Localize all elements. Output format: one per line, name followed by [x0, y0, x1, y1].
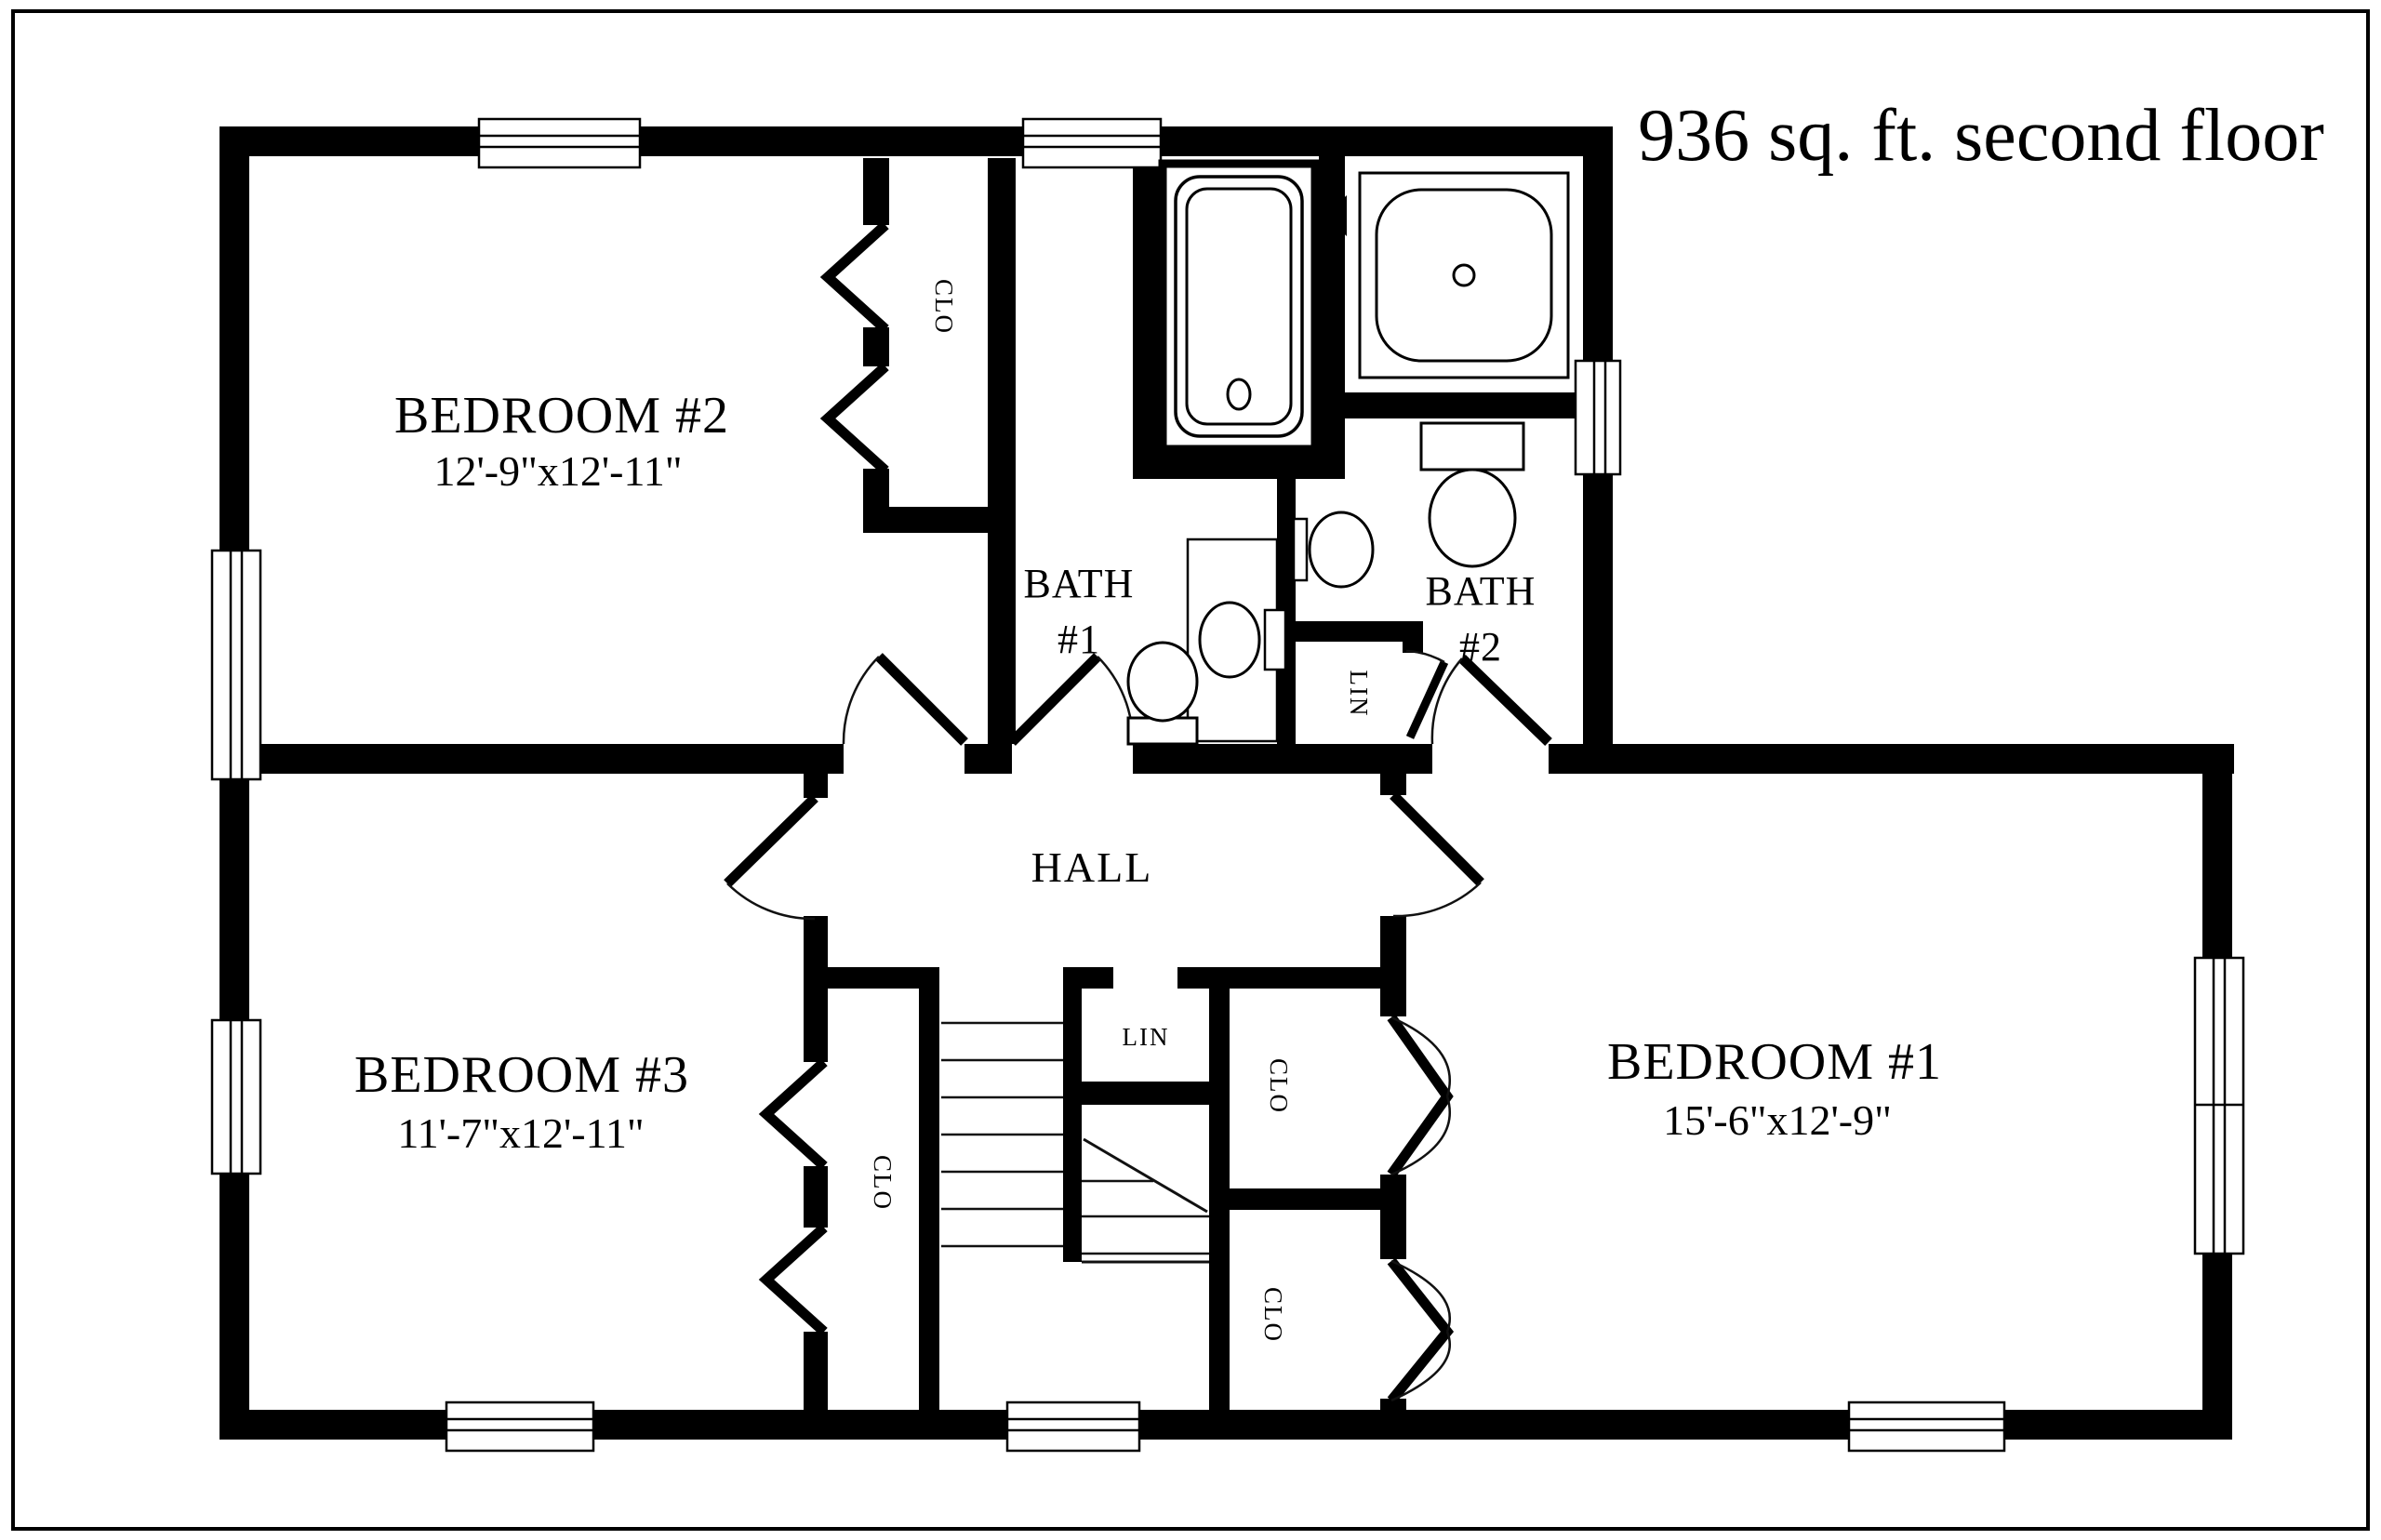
window-bedroom3-bottom: [446, 1402, 593, 1451]
bedroom1-closet-lower-label: CLO: [1259, 1287, 1287, 1343]
wall-lin2-stub-right: [1177, 967, 1209, 989]
bedroom2-dims: 12'-9"x12'-11": [433, 447, 682, 495]
bath2-linen-label: LIN: [1345, 670, 1373, 718]
hall-linen-label: LIN: [1123, 1023, 1170, 1051]
bath2-name: BATH: [1426, 568, 1536, 614]
wall-br2-closet-stub2: [863, 327, 889, 366]
bedroom2-name: BEDROOM #2: [394, 387, 729, 445]
wall-tub-bottom: [1133, 453, 1345, 479]
sink-bath1: [1200, 603, 1259, 677]
sink-bath2: [1294, 512, 1373, 587]
floor-plan-svg: 936 sq. ft. second floor BEDROOM #2 12'-…: [0, 0, 2381, 1540]
door-bath1: [1012, 657, 1133, 744]
window-bedroom3-left: [212, 1020, 260, 1174]
wall-br1-closet-post1: [1380, 989, 1406, 1016]
wall-shower-bottom: [1345, 392, 1583, 418]
window-bedroom1-bottom: [1849, 1402, 2004, 1451]
wall-br3-closet-right: [919, 989, 939, 1410]
door-bedroom3: [727, 798, 815, 919]
window-bath2-right: [1576, 361, 1620, 474]
vanity-bath1: [1188, 539, 1285, 741]
wall-bedroom2-bedroom3-divider: [249, 744, 844, 774]
window-bedroom1-right: [2195, 958, 2243, 1254]
wall-br3-door-post-bottom: [804, 916, 828, 967]
plan-title: 936 sq. ft. second floor: [1638, 95, 2324, 177]
door-bedroom1: [1393, 795, 1481, 916]
bedroom3-closet-label: CLO: [869, 1155, 897, 1211]
bifold-bedroom1-closet-lower: [1391, 1261, 1450, 1401]
bedroom2-closet-label: CLO: [930, 279, 958, 335]
floor-plan-page: 936 sq. ft. second floor BEDROOM #2 12'-…: [0, 0, 2381, 1540]
wall-lin2-stub-left: [1063, 967, 1113, 989]
shower: [1324, 173, 1568, 378]
wall-br3-closet-stub1: [804, 989, 828, 1062]
room-bedroom1: BEDROOM #1 15'-6"x12'-9": [1607, 1033, 1942, 1144]
window-bedroom2-left: [212, 551, 260, 779]
wall-br3-closet-top: [804, 967, 939, 989]
bath1-number: #1: [1057, 617, 1100, 662]
stairs-break-line: [1084, 1139, 1207, 1212]
wall-br3-closet-stub2: [804, 1166, 828, 1228]
bedroom1-name: BEDROOM #1: [1607, 1033, 1942, 1091]
room-bedroom2: BEDROOM #2 12'-9"x12'-11": [394, 387, 729, 495]
wall-br3-door-post-top: [804, 774, 828, 798]
wall-br1-closet-top: [1209, 967, 1406, 989]
window-bedroom2-top: [479, 119, 640, 167]
wall-lin2-bottom: [1063, 1082, 1209, 1105]
wall-hall-top: [1133, 744, 1432, 774]
wall-exterior-left: [219, 126, 249, 1440]
wall-br1-closet-post2: [1380, 1175, 1406, 1259]
bifold-bedroom1-closet-upper: [1391, 1017, 1450, 1175]
room-bath2: BATH #2: [1426, 568, 1536, 670]
door-bedroom2: [844, 657, 964, 744]
wall-tub-left: [1133, 158, 1159, 479]
wall-br2-closet-stub1: [863, 158, 889, 225]
wall-bath1-left: [988, 158, 1016, 744]
toilet-bath1: [1128, 643, 1197, 744]
bedroom1-closet-upper-label: CLO: [1265, 1058, 1293, 1114]
bathtub: [1163, 164, 1315, 449]
wall-bedroom1-top: [1549, 744, 2234, 774]
wall-bath-divider-upper: [1319, 126, 1345, 479]
window-bath1-top: [1023, 119, 1161, 167]
wall-lin2-left: [1063, 967, 1082, 1262]
bedroom3-name: BEDROOM #3: [354, 1046, 689, 1104]
wall-post-hall-doors: [964, 744, 1012, 774]
wall-br2-closet-bottom: [863, 507, 988, 533]
bedroom3-dims: 11'-7"x12'-11": [397, 1109, 644, 1157]
wall-lin1-post: [1403, 621, 1423, 653]
bedroom1-dims: 15'-6"x12'-9": [1663, 1096, 1892, 1144]
wall-br1-door-post-top: [1380, 774, 1406, 795]
bath2-number: #2: [1459, 624, 1502, 670]
bath1-name: BATH: [1024, 561, 1135, 606]
room-bath1: BATH #1: [1024, 561, 1135, 662]
toilet-bath2: [1421, 423, 1523, 566]
door-bath2-linen: [1406, 651, 1444, 737]
hall-name: HALL: [1031, 843, 1153, 891]
wall-br3-closet-stub3: [804, 1332, 828, 1410]
door-bath2: [1432, 658, 1549, 744]
room-bedroom3: BEDROOM #3 11'-7"x12'-11": [354, 1046, 689, 1157]
wall-exterior-top: [219, 126, 1613, 156]
window-stair-bottom: [1007, 1402, 1139, 1451]
wall-br1-closet-mid: [1209, 1188, 1406, 1210]
